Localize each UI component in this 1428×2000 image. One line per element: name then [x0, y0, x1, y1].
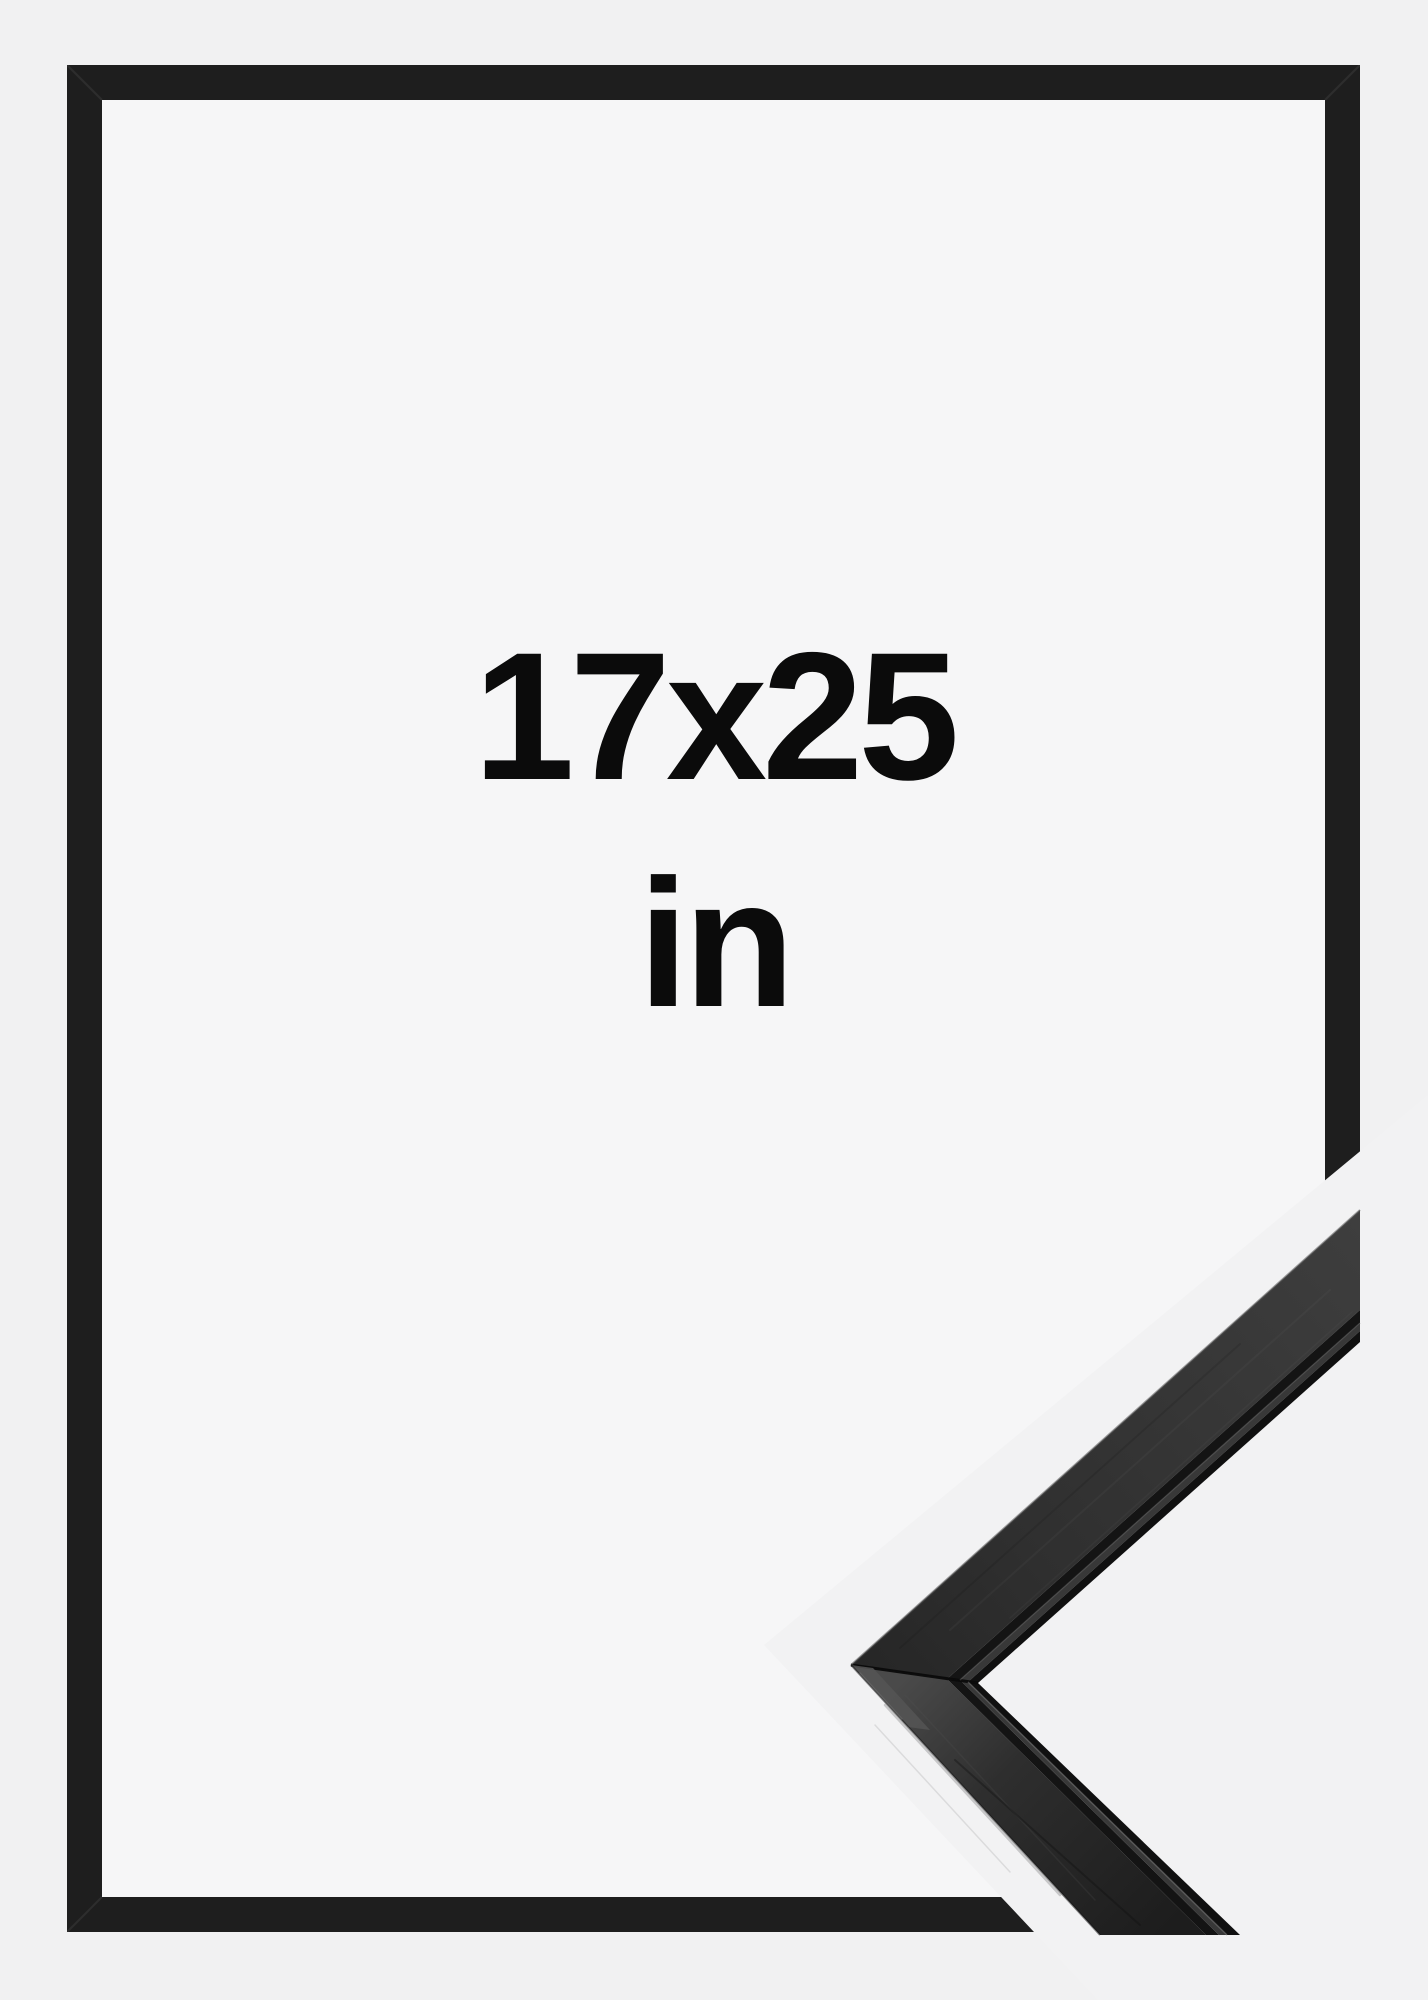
size-label-dimensions: 17x25 [0, 603, 1428, 830]
size-label-unit: in [0, 830, 1428, 1057]
size-label: 17x25 in [0, 603, 1428, 1057]
product-image: 17x25 in [0, 0, 1428, 2000]
